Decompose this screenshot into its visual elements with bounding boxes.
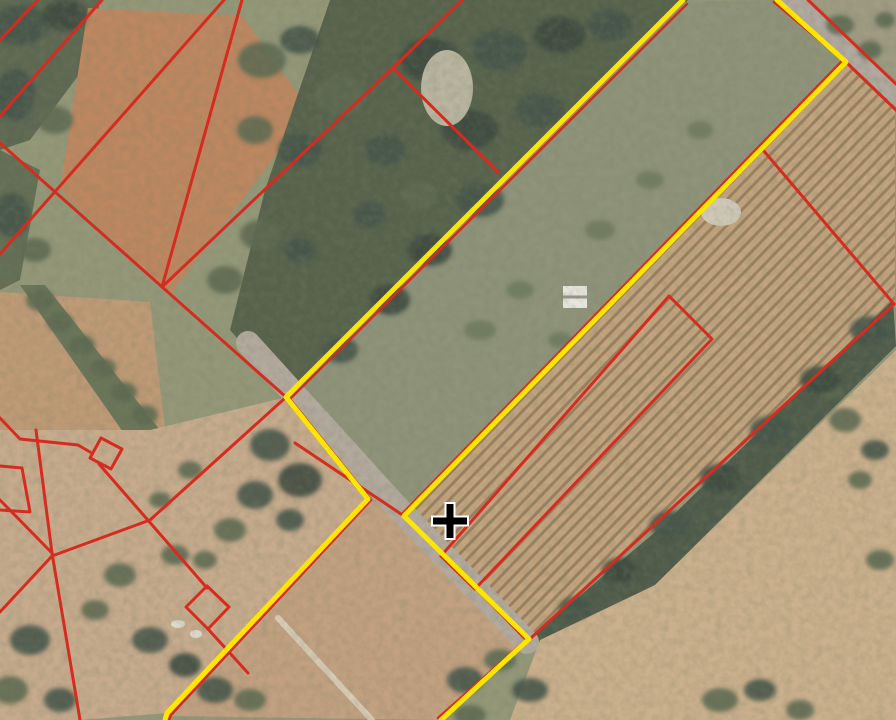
terrain-texture-overlay bbox=[0, 0, 896, 720]
cadastral-map-viewport[interactable] bbox=[0, 0, 896, 720]
cadastral-map-canvas[interactable] bbox=[0, 0, 896, 720]
aerial-basemap-layer bbox=[0, 0, 896, 720]
